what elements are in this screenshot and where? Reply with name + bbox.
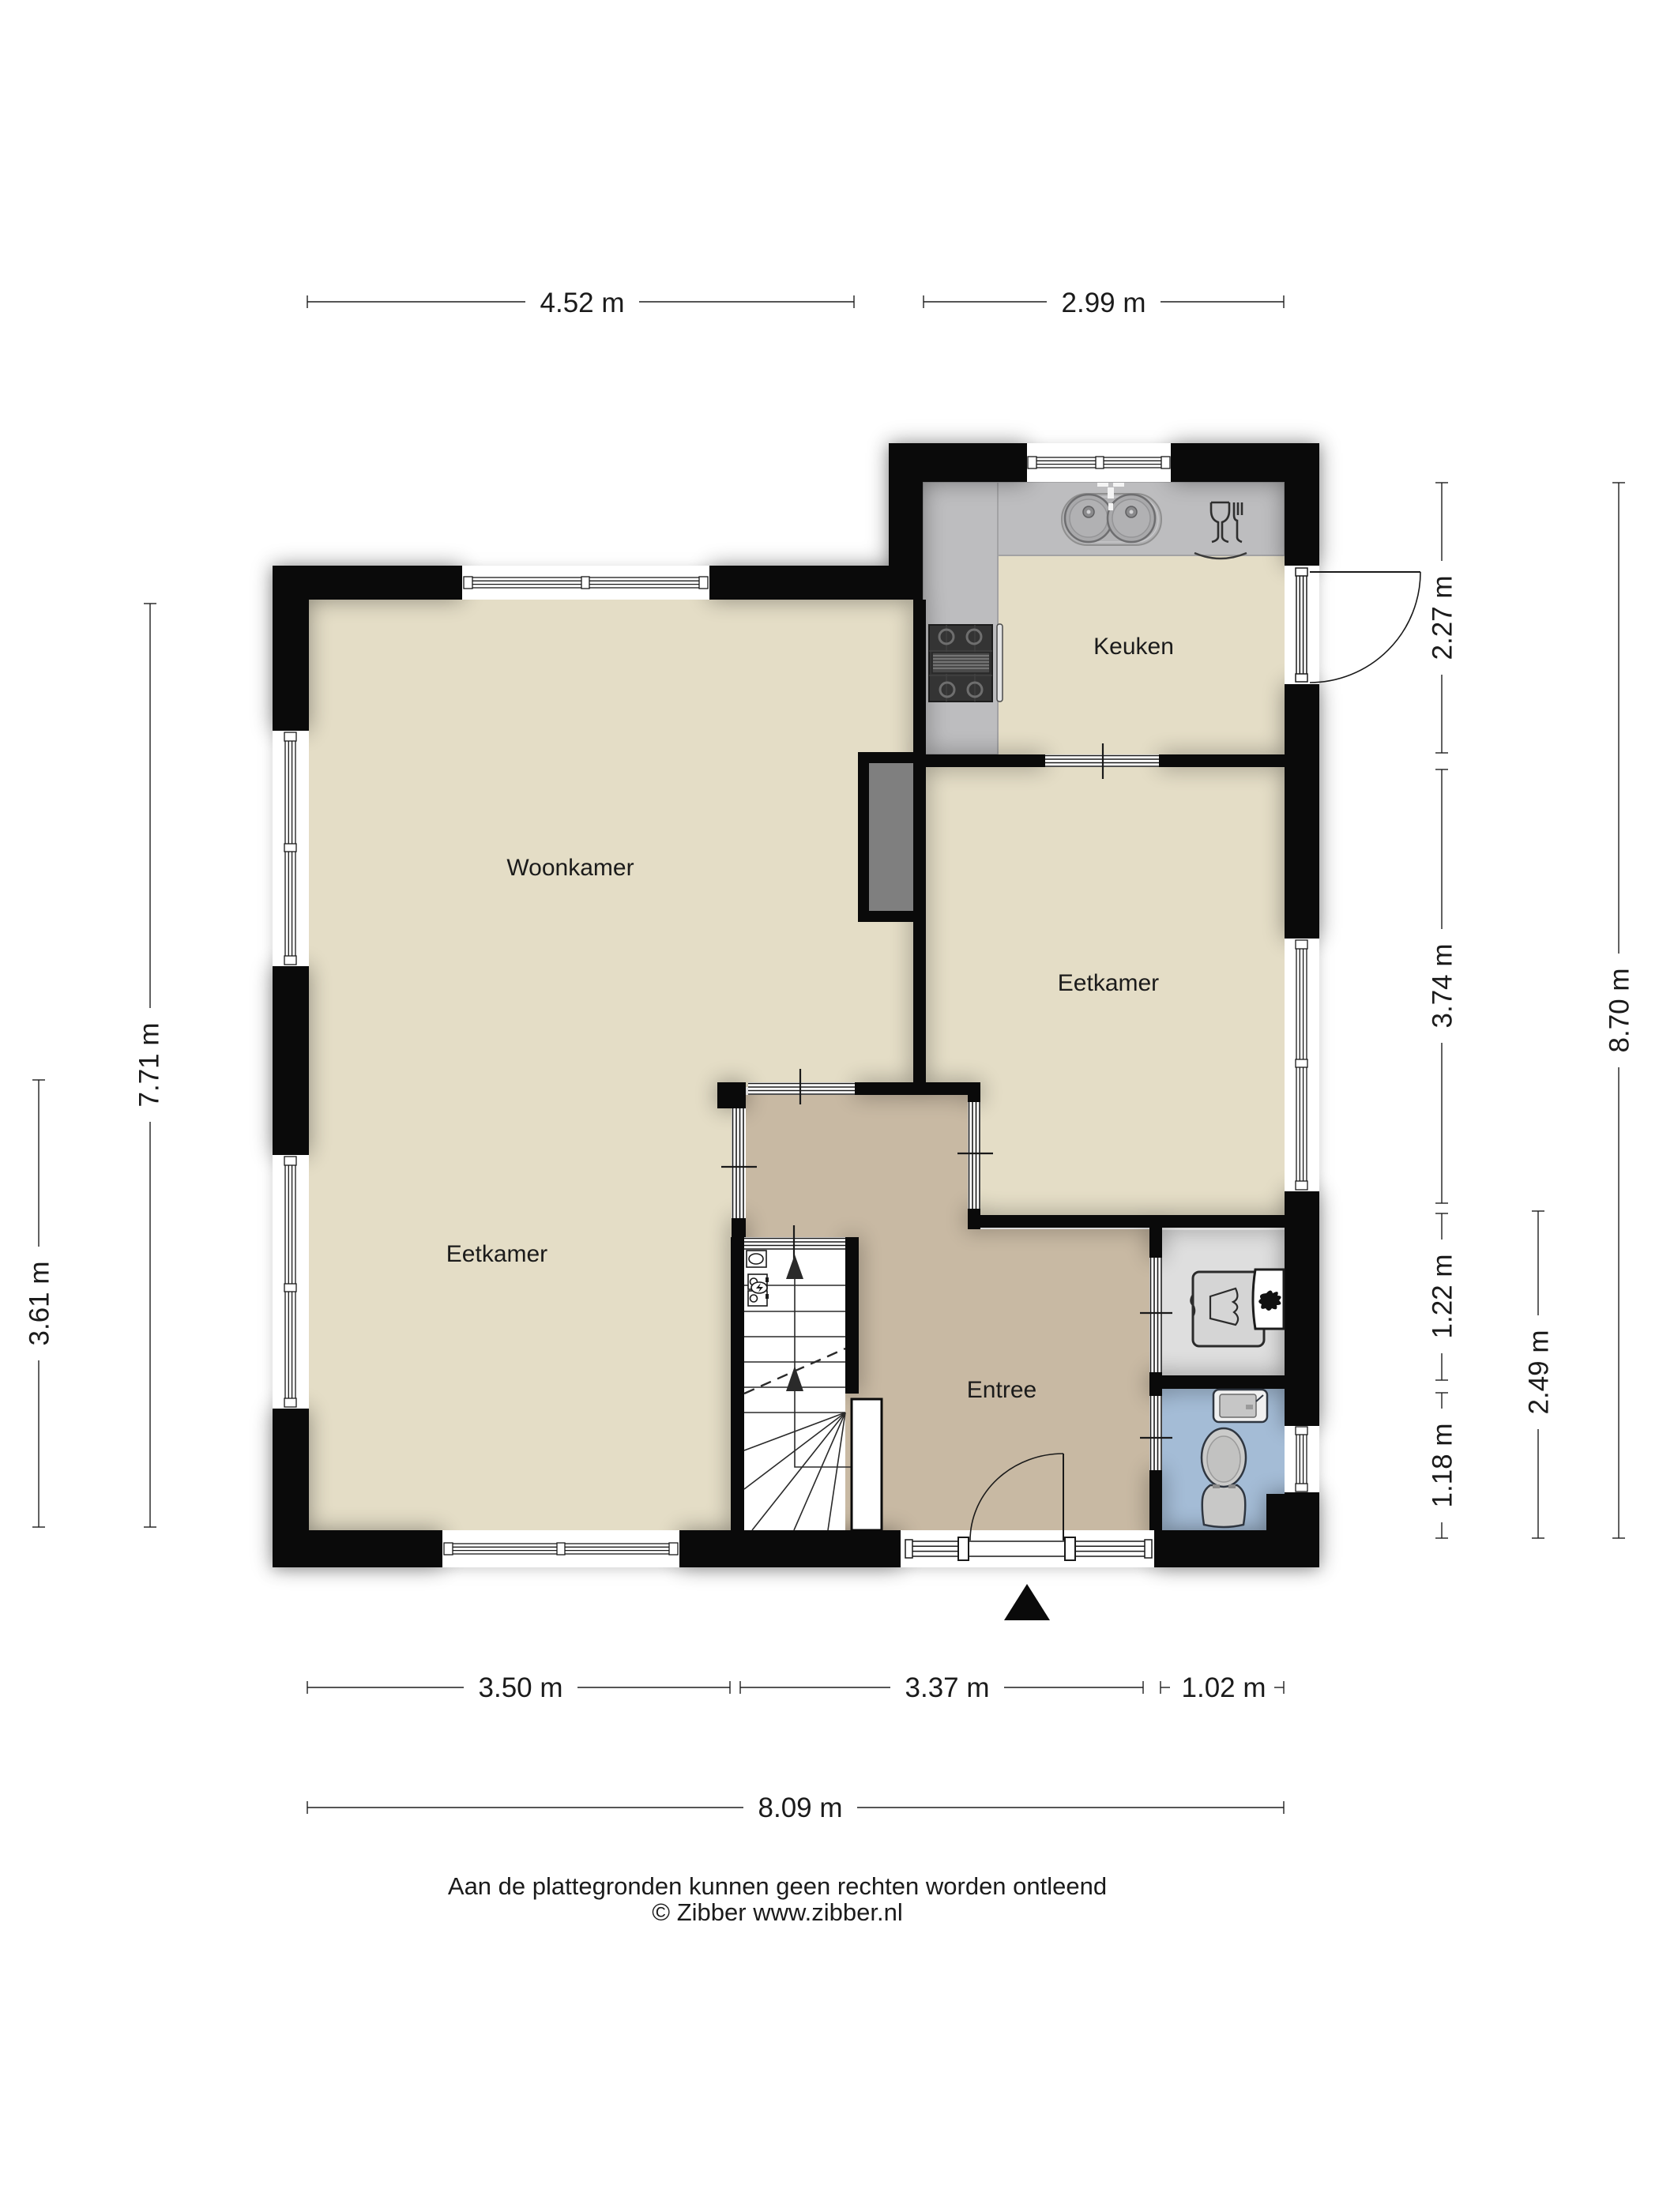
svg-text:© Zibber www.zibber.nl: © Zibber www.zibber.nl [652,1898,902,1926]
svg-text:2.49 m: 2.49 m [1524,1330,1555,1415]
svg-text:1.22 m: 1.22 m [1428,1255,1458,1339]
svg-text:2.27 m: 2.27 m [1428,576,1458,660]
svg-text:7.71 m: 7.71 m [134,1023,165,1108]
svg-text:3.74 m: 3.74 m [1428,944,1458,1029]
svg-text:1.18 m: 1.18 m [1428,1424,1458,1508]
svg-text:3.37 m: 3.37 m [905,1672,990,1703]
svg-text:2.99 m: 2.99 m [1062,288,1146,318]
svg-text:Keuken: Keuken [1093,634,1174,660]
svg-text:4.52 m: 4.52 m [540,288,625,318]
svg-text:1.02 m: 1.02 m [1182,1672,1266,1703]
svg-text:Aan de plattegronden kunnen ge: Aan de plattegronden kunnen geen rechten… [448,1872,1107,1900]
svg-text:Eetkamer: Eetkamer [446,1241,547,1267]
svg-text:Entree: Entree [967,1377,1036,1403]
svg-text:3.61 m: 3.61 m [24,1262,55,1346]
svg-text:8.70 m: 8.70 m [1604,969,1635,1053]
svg-text:3.50 m: 3.50 m [479,1672,563,1703]
svg-text:Eetkamer: Eetkamer [1058,970,1159,996]
svg-text:Woonkamer: Woonkamer [506,855,634,881]
svg-text:8.09 m: 8.09 m [758,1793,843,1823]
